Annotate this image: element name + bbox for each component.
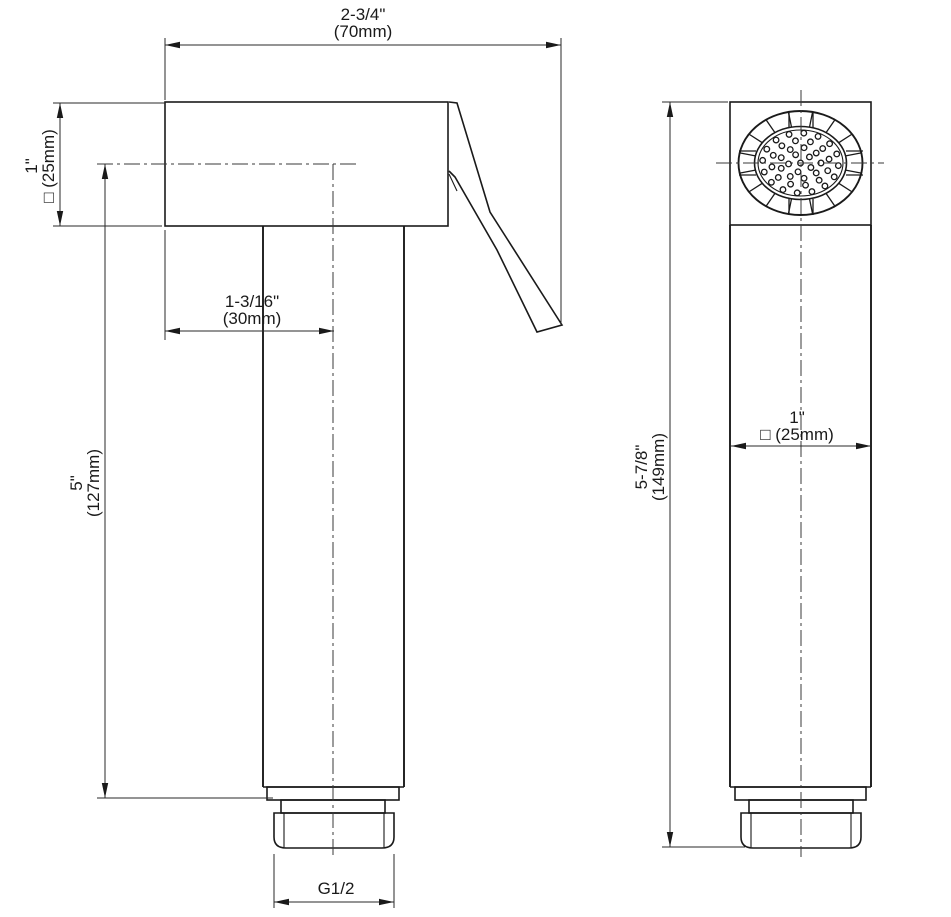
spray-hole <box>780 187 786 193</box>
bezel-spoke <box>749 134 762 143</box>
dim-label-metric: □ (25mm) <box>40 129 57 203</box>
bezel-spoke <box>809 112 812 127</box>
dim-label-imperial: 1" <box>717 409 877 426</box>
drawing-canvas: 2-3/4" (70mm) 1" □ (25mm) 1-3/16" (30mm)… <box>0 0 951 917</box>
spray-hole <box>786 161 792 167</box>
spray-hole <box>820 146 826 152</box>
spray-hole <box>801 145 807 151</box>
dim-arrow <box>379 899 394 905</box>
spray-hole <box>825 168 831 174</box>
spray-hole <box>760 158 766 164</box>
spray-hole <box>831 174 837 180</box>
dim-label-metric: (149mm) <box>650 433 667 501</box>
spray-hole <box>764 146 770 152</box>
spray-hole <box>801 175 807 181</box>
bezel-spoke <box>766 120 775 133</box>
dim-label-width-top: 2-3/4" (70mm) <box>293 6 433 40</box>
spray-hole <box>795 169 801 175</box>
spray-hole <box>801 130 807 136</box>
spray-hole <box>770 153 776 159</box>
dim-label-imperial: 2-3/4" <box>293 6 433 23</box>
dim-arrow <box>102 783 108 798</box>
spray-hole <box>786 132 792 138</box>
spray-hole <box>826 156 832 162</box>
spray-hole <box>813 150 819 156</box>
spray-hole <box>778 166 784 172</box>
spray-hole <box>808 165 814 171</box>
spray-hole <box>761 169 767 175</box>
bezel-spoke <box>826 120 835 133</box>
thread-nut-outline <box>274 813 394 848</box>
dim-label-imperial: 5" <box>68 449 85 517</box>
spray-hole <box>779 143 785 149</box>
spray-hole <box>793 152 799 158</box>
spray-hole <box>788 181 794 187</box>
dim-label-body-height: 1" □ (25mm) <box>23 129 57 203</box>
spray-hole <box>787 174 793 180</box>
spray-hole <box>834 151 840 157</box>
spray-hole <box>816 177 822 183</box>
dim-arrow <box>731 443 746 449</box>
bezel-spoke <box>846 170 862 173</box>
dim-arrow <box>667 102 673 117</box>
spray-hole <box>793 138 799 144</box>
bezel-spoke <box>839 183 852 192</box>
bezel-spoke <box>740 153 756 156</box>
dim-arrow <box>319 328 334 334</box>
spray-hole <box>827 141 833 147</box>
dim-label-imperial: 5-7/8" <box>633 433 650 501</box>
dim-arrow <box>546 42 561 48</box>
spray-hole <box>778 155 784 161</box>
spray-hole <box>822 183 828 189</box>
dim-label-thread-text: G1/2 <box>286 880 386 897</box>
dim-label-metric: (30mm) <box>182 310 322 327</box>
spray-hole <box>775 175 781 181</box>
bezel-spoke <box>740 170 756 173</box>
spray-hole <box>836 163 842 169</box>
dim-label-metric: (127mm) <box>85 449 102 517</box>
dim-label-imperial: 1" <box>23 129 40 203</box>
spray-hole <box>808 139 814 145</box>
dim-label-overall-height: 5-7/8" (149mm) <box>633 433 667 501</box>
dim-label-thread: G1/2 <box>286 880 386 897</box>
bezel-spoke <box>749 183 762 192</box>
bezel-spoke <box>766 193 775 206</box>
dim-arrow <box>667 832 673 847</box>
spray-hole <box>794 190 800 196</box>
dim-label-handle-offset: 1-3/16" (30mm) <box>182 293 322 327</box>
dim-label-head-width: 1" □ (25mm) <box>717 409 877 443</box>
bezel-spoke <box>846 153 862 156</box>
bezel-spoke <box>826 193 835 206</box>
spray-hole <box>769 179 775 185</box>
bezel-spoke <box>839 134 852 143</box>
dim-label-metric: □ (25mm) <box>717 426 877 443</box>
dim-arrow <box>165 42 180 48</box>
spray-hole <box>807 154 813 160</box>
spray-hole <box>773 137 779 143</box>
dim-arrow <box>165 328 180 334</box>
trigger-handle-outline <box>449 102 562 332</box>
dim-arrow <box>856 443 871 449</box>
handle-root-edge <box>449 174 457 191</box>
dim-arrow <box>274 899 289 905</box>
dim-label-tube-length: 5" (127mm) <box>68 449 102 517</box>
spray-hole <box>809 189 815 195</box>
spray-hole <box>813 170 819 176</box>
dim-arrow <box>102 164 108 179</box>
spray-hole <box>815 134 821 140</box>
bezel-spoke <box>809 199 812 214</box>
spray-hole <box>769 164 775 170</box>
spray-hole <box>803 182 809 188</box>
technical-drawing-svg <box>0 0 951 917</box>
dim-arrow <box>57 211 63 226</box>
side-view <box>53 38 562 908</box>
front-view <box>662 90 884 857</box>
dim-label-imperial: 1-3/16" <box>182 293 322 310</box>
dim-label-metric: (70mm) <box>293 23 433 40</box>
spray-hole <box>787 147 793 153</box>
dim-arrow <box>57 103 63 118</box>
